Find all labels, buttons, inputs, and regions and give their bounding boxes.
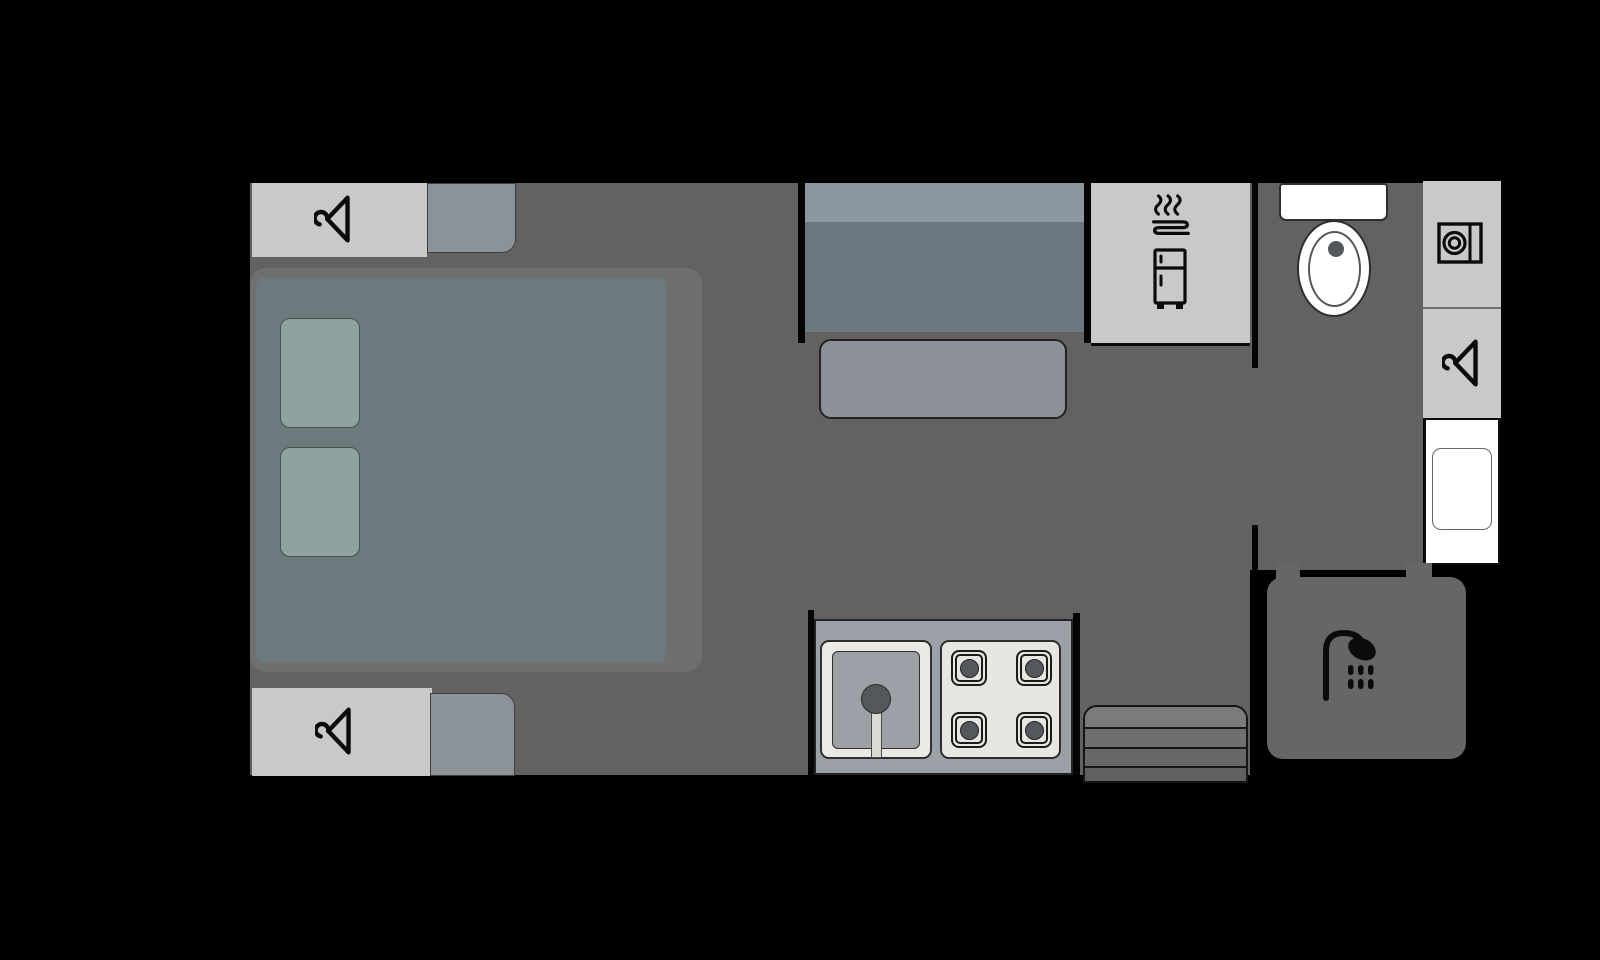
- fridge-icon: [1148, 248, 1192, 312]
- wall-dinette-right: [1084, 183, 1091, 343]
- burner-top-left: [951, 650, 987, 686]
- step-band: [1085, 747, 1246, 766]
- burner-bottom-left: [951, 712, 987, 748]
- step-band: [1085, 766, 1246, 781]
- step-band: [1085, 727, 1246, 747]
- burner-dot: [960, 659, 979, 678]
- burner-ring: [955, 654, 983, 682]
- overhead-cabinet-bottom: [430, 693, 515, 776]
- burner-top-right: [1016, 650, 1052, 686]
- hanger-icon: [1442, 334, 1482, 392]
- dinette-seat-cushion: [805, 222, 1084, 332]
- entry-step: [1083, 705, 1248, 783]
- burner-ring: [1020, 654, 1048, 682]
- dinette-seat-back: [805, 183, 1084, 222]
- wall-kitchen-right: [1073, 613, 1080, 775]
- overhead-cabinet-top: [427, 183, 516, 253]
- wall-bathroom-lower: [1252, 525, 1258, 570]
- burner-ring: [955, 716, 983, 744]
- burner-ring: [1020, 716, 1048, 744]
- wall-bathroom-upper: [1252, 183, 1258, 368]
- toilet-flush-button: [1328, 241, 1344, 257]
- pillow-right: [280, 447, 360, 557]
- step-band: [1085, 707, 1246, 727]
- heat-steam-icon: [1148, 194, 1192, 242]
- toilet-cistern: [1279, 183, 1388, 221]
- floorplan-canvas: [0, 0, 1600, 960]
- hanger-icon: [315, 702, 355, 760]
- hanger-icon: [314, 190, 354, 248]
- burner-dot: [1025, 721, 1044, 740]
- dinette-table: [819, 339, 1067, 419]
- burner-dot: [960, 721, 979, 740]
- washing-machine-icon: [1437, 222, 1483, 264]
- wall-dinette-left: [798, 183, 805, 343]
- burner-dot: [1025, 659, 1044, 678]
- vanity-basin: [1432, 448, 1492, 530]
- pillow-left: [280, 318, 360, 428]
- burner-bottom-right: [1016, 712, 1052, 748]
- shower-icon: [1317, 620, 1379, 702]
- faucet: [861, 684, 891, 714]
